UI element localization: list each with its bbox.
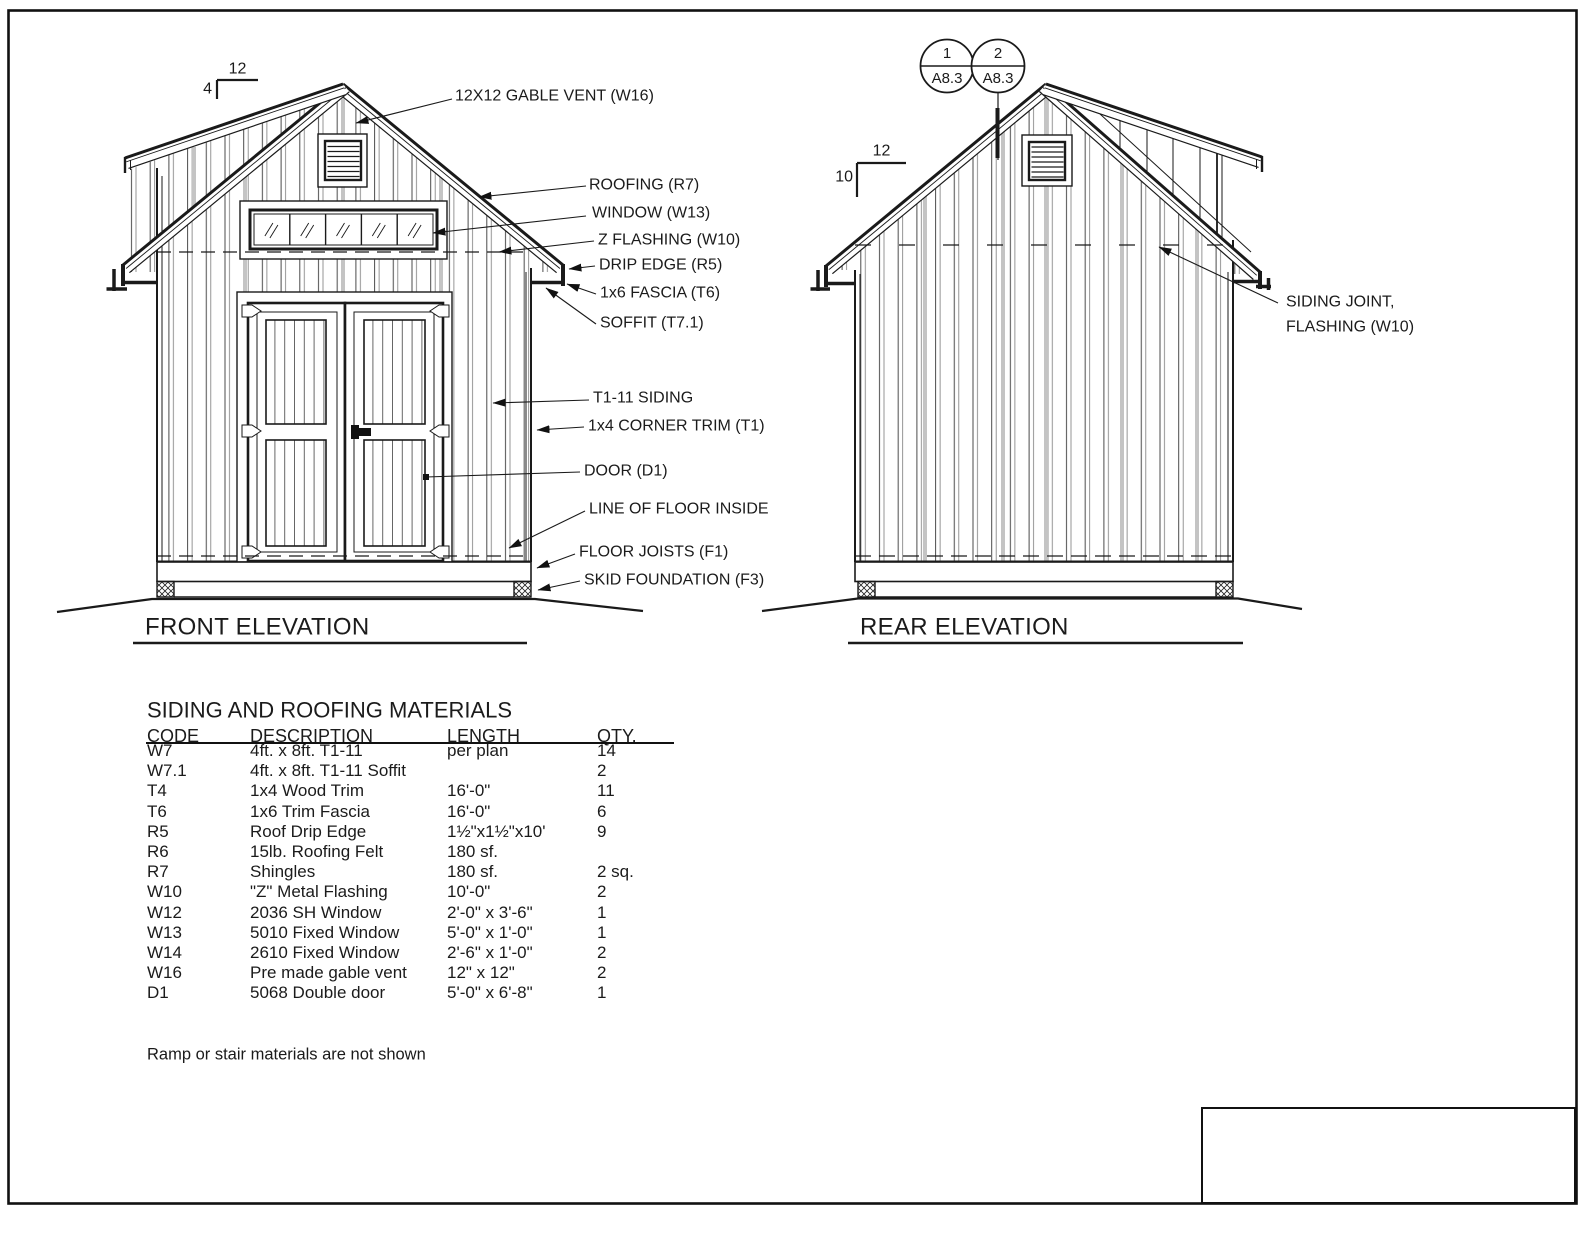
callout-1-number: 1 (927, 46, 967, 62)
table-cell: W12 (147, 903, 250, 923)
table-cell: 5068 Double door (250, 983, 447, 1003)
callout-1-sheet: A8.3 (921, 71, 973, 87)
table-cell: "Z" Metal Flashing (250, 882, 447, 902)
table-cell: 10'-0" (447, 882, 597, 902)
front-gable-vent (318, 134, 367, 187)
table-cell: 2 (597, 882, 674, 902)
table-cell: 4ft. x 8ft. T1-11 Soffit (250, 761, 447, 781)
table-cell: 2 (597, 943, 674, 963)
table-row: W10"Z" Metal Flashing10'-0"2 (147, 882, 674, 902)
table-cell: W10 (147, 882, 250, 902)
drawing-sheet: 12X12 GABLE VENT (W16) ROOFING (R7) WIND… (0, 0, 1590, 1243)
label-floor-joists: FLOOR JOISTS (F1) (579, 545, 728, 562)
table-cell: R6 (147, 842, 250, 862)
table-cell: W13 (147, 923, 250, 943)
table-cell: 2036 SH Window (250, 903, 447, 923)
rear-elevation-title: REAR ELEVATION (860, 614, 1069, 639)
table-cell: Pre made gable vent (250, 963, 447, 983)
table-cell: 1 (597, 903, 674, 923)
table-cell: 180 sf. (447, 842, 597, 862)
table-cell: T4 (147, 781, 250, 801)
materials-note: Ramp or stair materials are not shown (147, 1046, 426, 1063)
table-cell: 5'-0" x 6'-8" (447, 983, 597, 1003)
front-slope-rise: 4 (184, 82, 212, 99)
table-cell: 5'-0" x 1'-0" (447, 923, 597, 943)
table-row: W142610 Fixed Window2'-6" x 1'-0"2 (147, 943, 674, 963)
materials-table-title: SIDING AND ROOFING MATERIALS (147, 698, 512, 721)
label-drip-edge: DRIP EDGE (R5) (599, 258, 722, 275)
label-floor-line: LINE OF FLOOR INSIDE (589, 502, 769, 519)
table-cell: 9 (597, 822, 674, 842)
label-door: DOOR (D1) (584, 464, 668, 481)
table-row: T41x4 Wood Trim16'-0"11 (147, 781, 674, 801)
label-gable-vent: 12X12 GABLE VENT (W16) (455, 89, 654, 106)
table-cell: 16'-0" (447, 802, 597, 822)
table-cell: 180 sf. (447, 862, 597, 882)
table-row: R7Shingles180 sf.2 sq. (147, 862, 674, 882)
table-cell: 16'-0" (447, 781, 597, 801)
table-row: T61x6 Trim Fascia16'-0"6 (147, 802, 674, 822)
label-siding-joint-line2: FLASHING (W10) (1286, 320, 1414, 337)
table-cell: 2'-0" x 3'-6" (447, 903, 597, 923)
front-window (240, 201, 447, 259)
title-block: Exterior Elevations 3 Copyright 2015 Big… (1201, 1107, 1576, 1204)
table-cell: 15lb. Roofing Felt (250, 842, 447, 862)
table-cell: 12" x 12" (447, 963, 597, 983)
table-cell: T6 (147, 802, 250, 822)
table-row: W7.14ft. x 8ft. T1-11 Soffit2 (147, 761, 674, 781)
table-cell: 11 (597, 781, 674, 801)
table-cell: 1x4 Wood Trim (250, 781, 447, 801)
front-elevation-title: FRONT ELEVATION (145, 614, 370, 639)
table-cell: Roof Drip Edge (250, 822, 447, 842)
rear-gable-vent (1022, 135, 1072, 186)
rear-slope-rise: 10 (821, 170, 853, 187)
label-z-flashing: Z FLASHING (W10) (598, 233, 740, 250)
label-t111-siding: T1-11 SIDING (593, 391, 693, 408)
ground-line (762, 599, 1302, 612)
table-cell: R7 (147, 862, 250, 882)
table-cell: 1½"x1½"x10' (447, 822, 597, 842)
callout-2-number: 2 (978, 46, 1018, 62)
front-slope-run: 12 (217, 62, 258, 79)
rear-elevation-drawing (762, 40, 1302, 644)
table-cell: 6 (597, 802, 674, 822)
label-roofing: ROOFING (R7) (589, 178, 699, 195)
table-cell: 2 (597, 963, 674, 983)
table-cell: D1 (147, 983, 250, 1003)
rear-slope-run: 12 (857, 144, 906, 161)
table-cell: per plan (447, 741, 597, 761)
table-cell: 1x6 Trim Fascia (250, 802, 447, 822)
front-door (237, 292, 452, 562)
front-elevation-drawing (57, 80, 643, 643)
label-soffit: SOFFIT (T7.1) (600, 316, 704, 333)
label-window: WINDOW (W13) (592, 206, 710, 223)
ground-line (57, 599, 643, 612)
table-cell: W7 (147, 741, 250, 761)
table-row: W16Pre made gable vent12" x 12"2 (147, 963, 674, 983)
label-skid-foundation: SKID FOUNDATION (F3) (584, 573, 764, 590)
table-row: D15068 Double door5'-0" x 6'-8"1 (147, 983, 674, 1003)
table-row: W135010 Fixed Window5'-0" x 1'-0"1 (147, 923, 674, 943)
label-corner-trim: 1x4 CORNER TRIM (T1) (588, 419, 765, 436)
table-cell: 1 (597, 983, 674, 1003)
label-siding-joint-line1: SIDING JOINT, (1286, 295, 1394, 312)
table-cell: W7.1 (147, 761, 250, 781)
materials-table-rows: W74ft. x 8ft. T1-11per plan14W7.14ft. x … (147, 741, 674, 1003)
label-fascia: 1x6 FASCIA (T6) (600, 286, 720, 303)
table-cell: 2'-6" x 1'-0" (447, 943, 597, 963)
table-cell: R5 (147, 822, 250, 842)
table-row: W122036 SH Window2'-0" x 3'-6"1 (147, 903, 674, 923)
table-cell: 1 (597, 923, 674, 943)
table-cell: W14 (147, 943, 250, 963)
table-cell: 4ft. x 8ft. T1-11 (250, 741, 447, 761)
table-cell: W16 (147, 963, 250, 983)
table-row: W74ft. x 8ft. T1-11per plan14 (147, 741, 674, 761)
front-skid-foundation (157, 562, 531, 597)
table-cell: 2 (597, 761, 674, 781)
table-cell: Shingles (250, 862, 447, 882)
callout-2-sheet: A8.3 (972, 71, 1024, 87)
table-row: R615lb. Roofing Felt180 sf. (147, 842, 674, 862)
table-cell: 14 (597, 741, 674, 761)
table-cell: 5010 Fixed Window (250, 923, 447, 943)
table-row: R5Roof Drip Edge1½"x1½"x10'9 (147, 822, 674, 842)
rear-skid-foundation (855, 562, 1233, 597)
table-cell: 2 sq. (597, 862, 674, 882)
table-cell: 2610 Fixed Window (250, 943, 447, 963)
